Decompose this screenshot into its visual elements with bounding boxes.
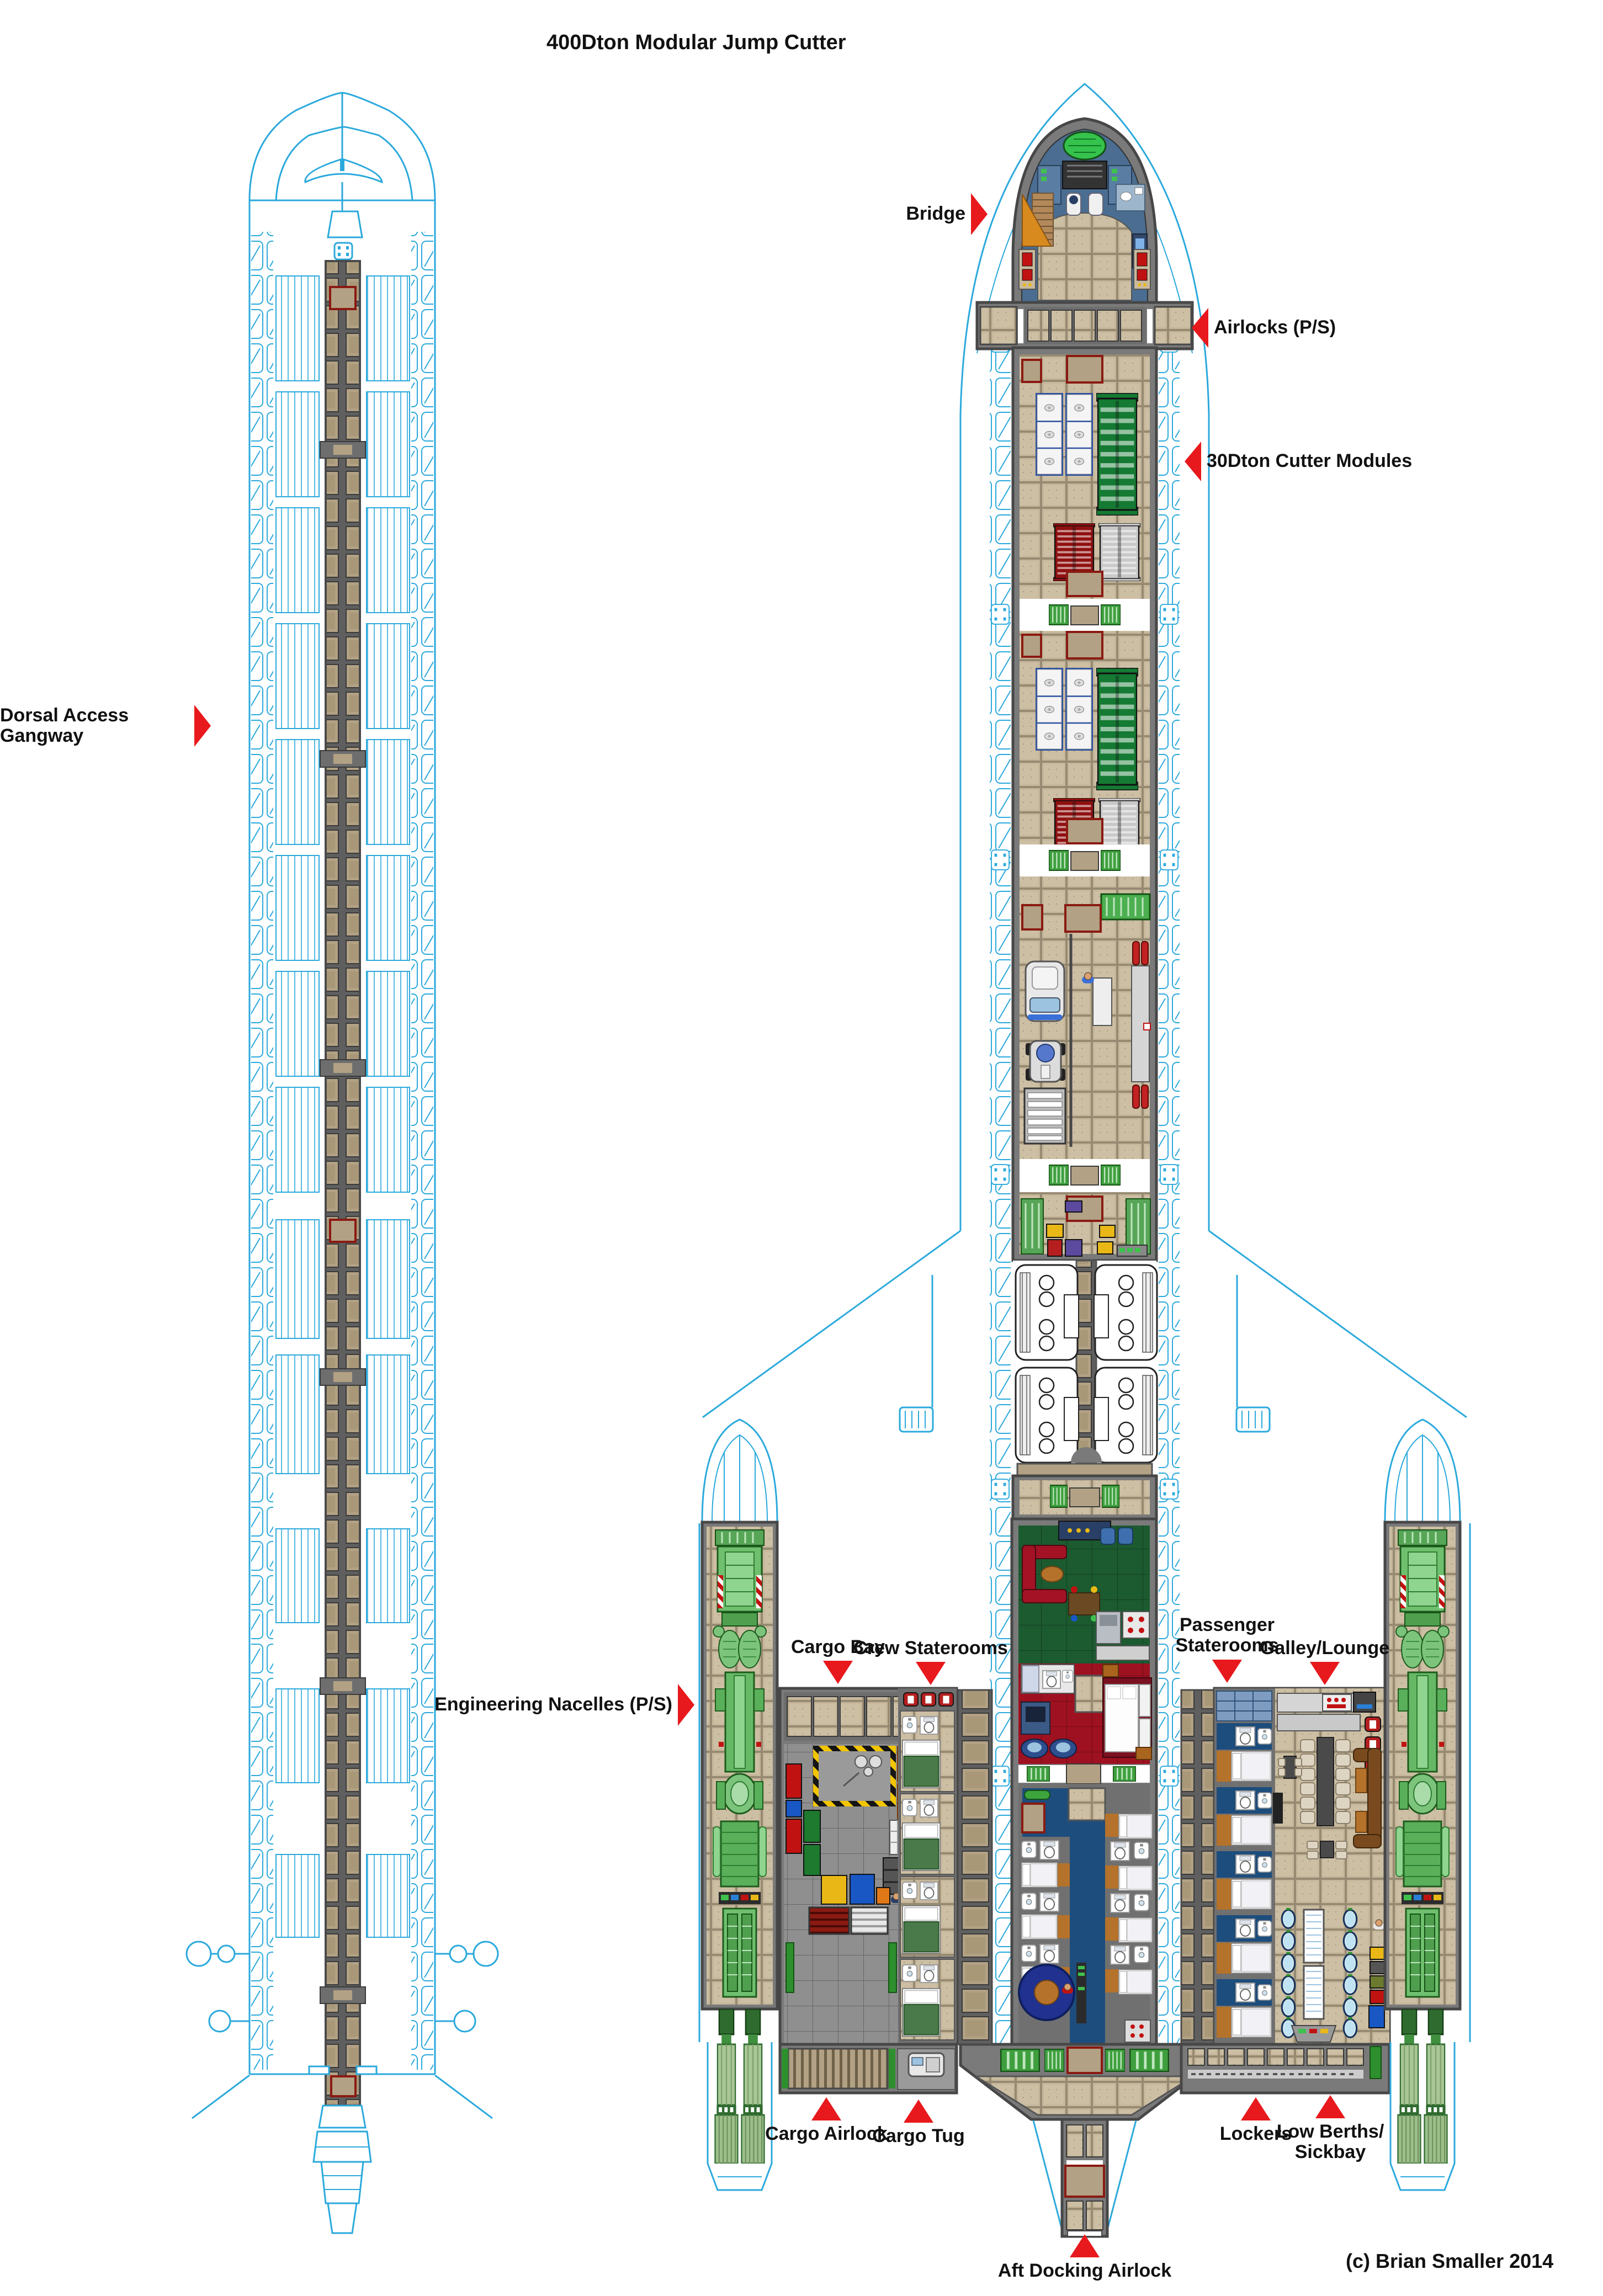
spine-separator [1018,1764,1150,1784]
gangway-strip-starboard [1181,1690,1215,2044]
low-berths-sickbay [1275,1904,1389,2044]
right-arrow-icon [194,705,211,747]
module-separator-3 [1020,1159,1150,1192]
airlock-band [977,302,1192,349]
right-arrow-icon [971,193,988,235]
label-bridge: Bridge [740,193,988,235]
label-aft-docking-airlock: Aft Docking Airlock [974,2234,1195,2281]
label-low-berths: Low Berths/ Sickbay [1248,2095,1413,2163]
label-dorsal-gangway-text: Dorsal Access Gangway [0,705,189,747]
passenger-staterooms-column [1214,1688,1275,2044]
label-airlocks: Airlocks (P/S) [1192,308,1336,348]
label-bridge-text: Bridge [906,204,965,224]
ground-car [1026,961,1064,1021]
label-low-berths-text: Low Berths/ Sickbay [1277,2122,1384,2163]
engineering-nacelle-port [702,1420,777,2190]
left-arrow-icon [1192,308,1208,348]
up-arrow-icon [1070,2234,1100,2257]
label-dorsal-gangway: Dorsal Access Gangway [0,705,211,747]
label-galley-lounge-text: Galley/Lounge [1260,1638,1389,1659]
label-crew-staterooms: Crew Staterooms [848,1638,1013,1685]
down-arrow-icon [916,1662,946,1685]
starboard-bottom-band [1181,2044,1389,2093]
label-cutter-modules-text: 30Dton Cutter Modules [1207,451,1412,471]
label-cargo-tug-text: Cargo Tug [872,2126,964,2146]
cargo-bay-room [784,1744,914,1905]
module-separator-1 [1020,599,1150,631]
up-arrow-icon [1315,2095,1345,2118]
deck-plan-sheet: 400Dton Modular Jump Cutter (c) Brian Sm… [0,0,1603,2296]
down-arrow-icon [1212,1660,1242,1683]
midbody [1013,348,1156,1261]
gangway-strip-port [958,1690,992,2044]
crew-staterooms-column [898,1688,957,2044]
lower-deck-corridor [1018,1784,1152,2044]
label-engineering-nacelles-text: Engineering Nacelles (P/S) [434,1694,672,1715]
label-crew-staterooms-text: Crew Staterooms [853,1638,1008,1659]
lounge [1018,1521,1150,1663]
aft-docking-airlock-stub [1062,2119,1107,2236]
page-title: 400Dton Modular Jump Cutter [546,31,846,55]
label-cutter-modules: 30Dton Cutter Modules [1185,442,1412,481]
dorsal-view-ship [187,93,498,2233]
cargo-airlock-room [784,1905,898,2044]
deck-plan-ship [699,84,1470,2236]
shelf-rack [1025,1088,1065,1144]
cargo-tug-bay [898,2049,955,2090]
left-arrow-icon [1185,442,1201,481]
dorsal-nose-arcs [250,93,435,211]
dorsal-tail-drive [314,2106,371,2233]
atv [1026,1041,1065,1082]
label-cargo-tug: Cargo Tug [836,2100,1001,2146]
right-arrow-icon [678,1684,694,1726]
bridge [1013,119,1156,302]
dorsal-truss-starboard [411,232,433,2070]
ship-drawing [0,0,1603,2296]
dorsal-truss-port [251,232,273,2070]
label-engineering-nacelles: Engineering Nacelles (P/S) [426,1684,694,1726]
label-aft-docking-airlock-text: Aft Docking Airlock [998,2261,1171,2281]
port-bottom-band [780,2044,957,2093]
label-galley-lounge: Galley/Lounge [1242,1638,1408,1685]
galley-lounge-room [1273,1688,1389,1904]
crew-stateroom-deck [1018,1663,1151,1764]
dorsal-access-gangway-strip [326,261,360,2106]
label-airlocks-text: Airlocks (P/S) [1214,317,1336,338]
up-arrow-icon [904,2100,933,2123]
aft-transition-band [1013,1476,1156,1519]
copyright-credit: (c) Brian Smaller 2014 [1346,2250,1553,2273]
port-deck [780,1688,957,2093]
engineering-nacelle-starboard [1385,1420,1460,2190]
cutter-module-berths [1013,1261,1157,1476]
down-arrow-icon [1310,1662,1340,1685]
module-separator-2 [1020,844,1150,876]
